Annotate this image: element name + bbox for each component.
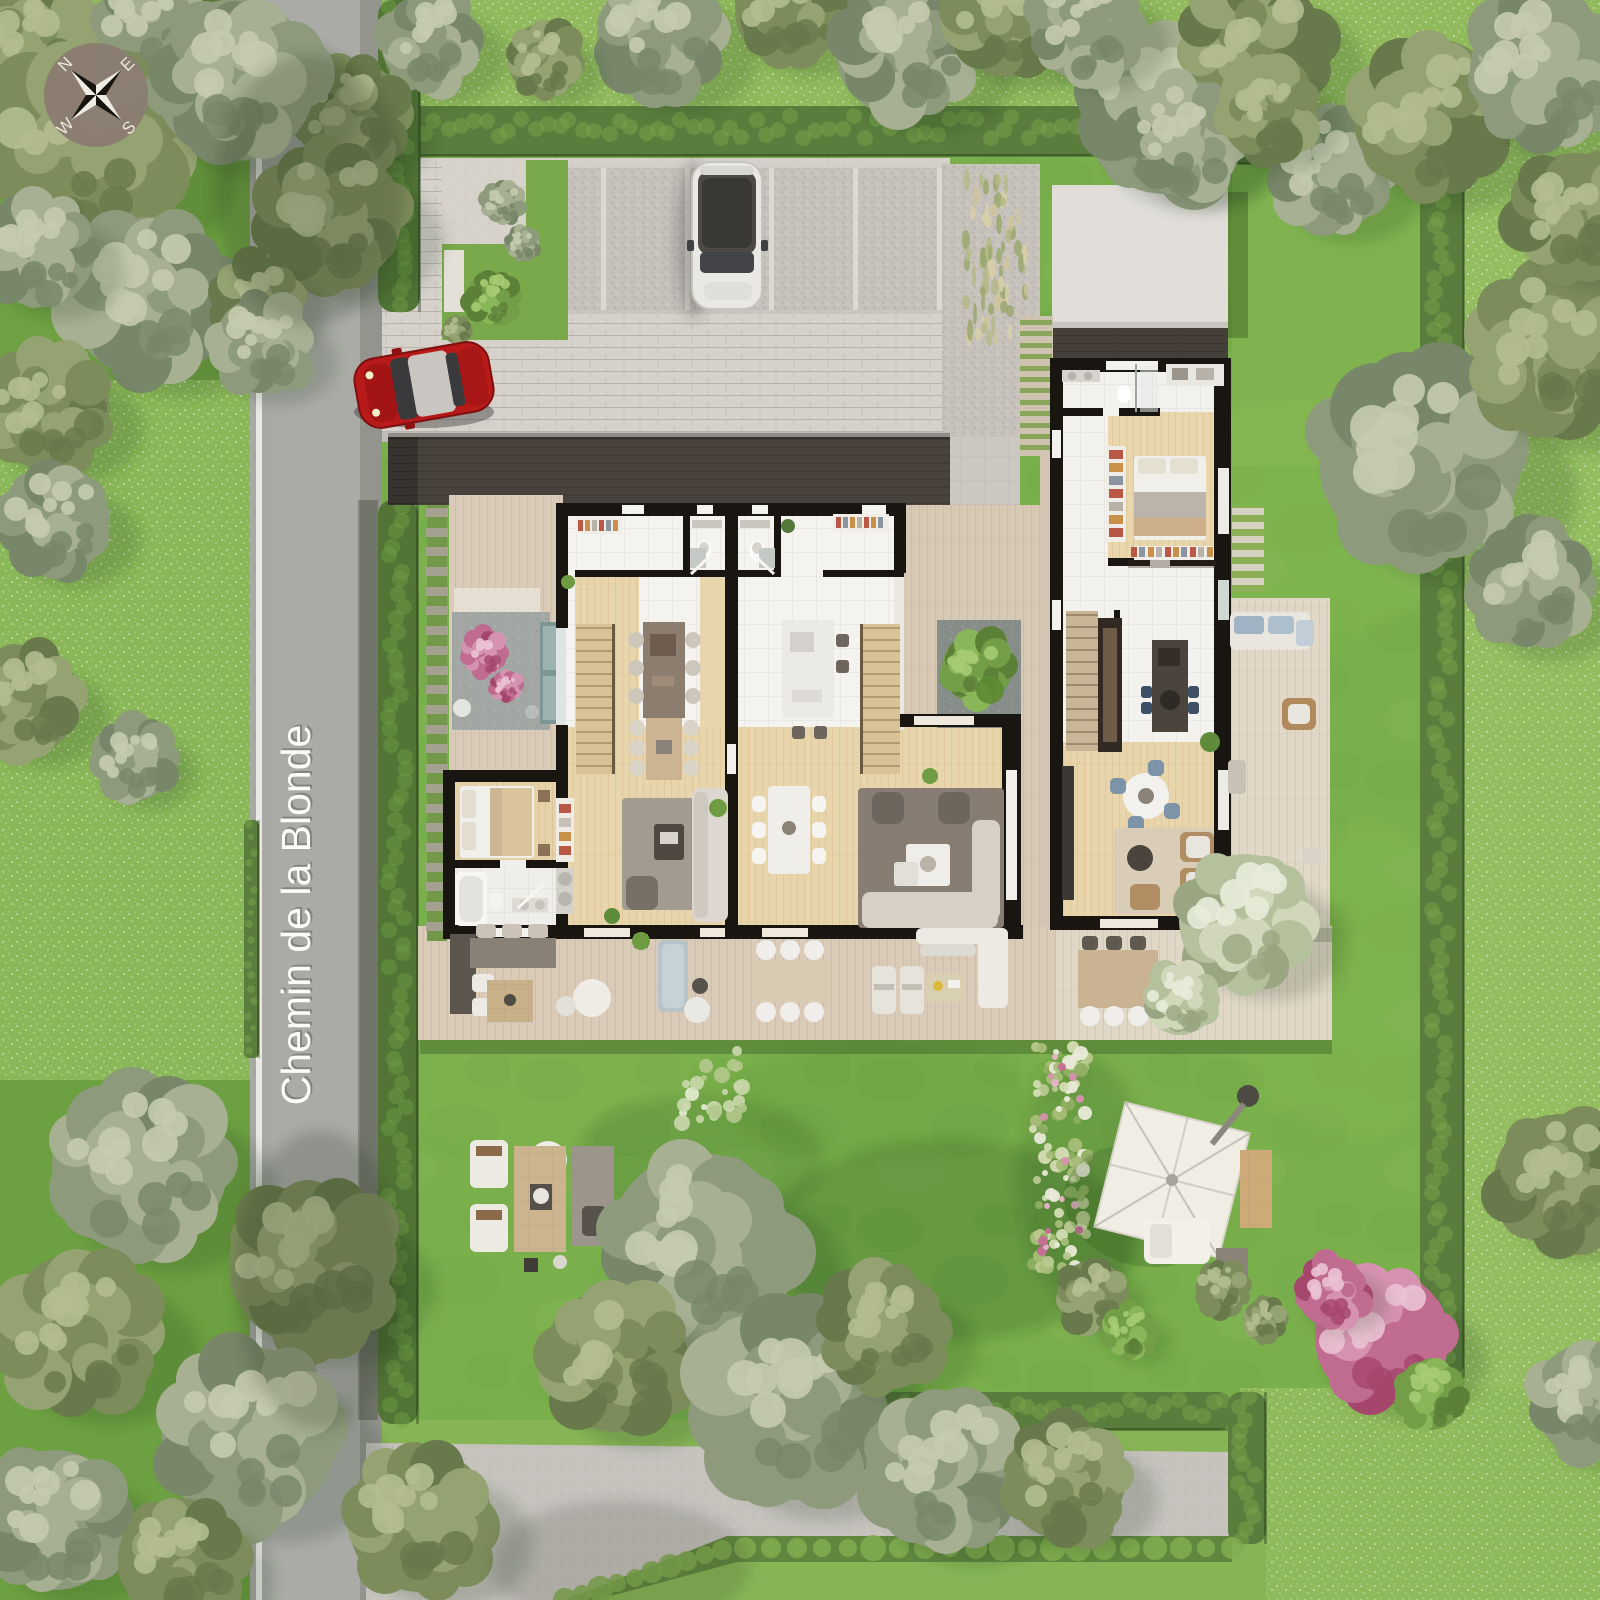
svg-text:Chemin de la Blonde: Chemin de la Blonde xyxy=(273,725,319,1106)
